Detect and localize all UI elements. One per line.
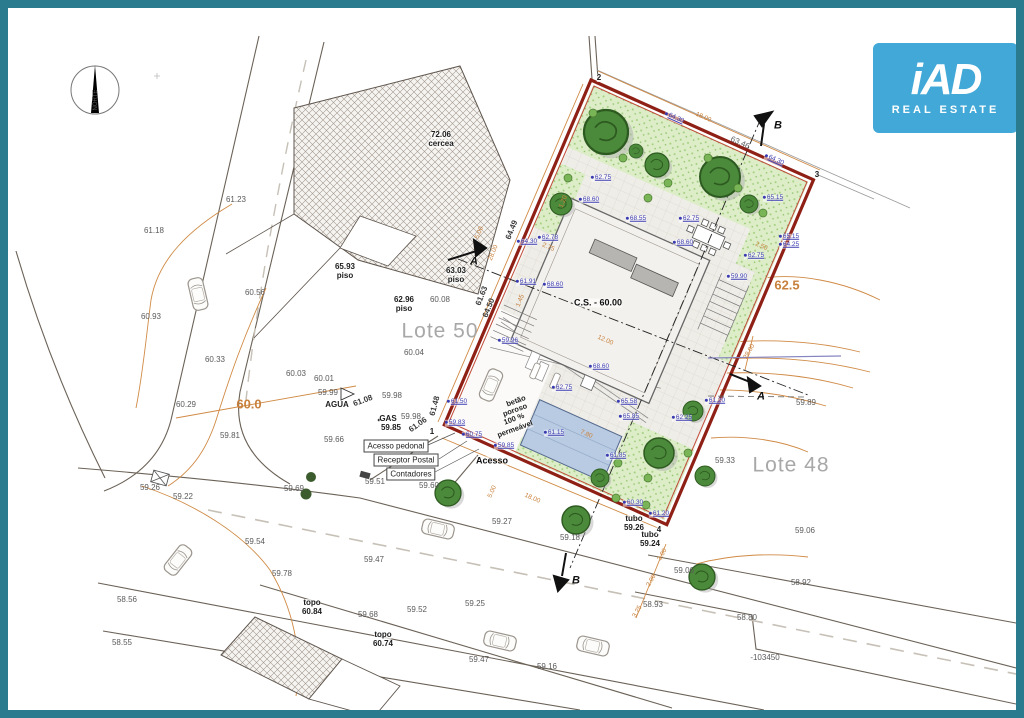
plan-label: 60.30 (623, 500, 643, 507)
plan-label: tubo (625, 515, 642, 523)
plan-label: piso (396, 305, 412, 313)
plan-label: Contadores (386, 468, 435, 481)
plan-label: 63.46 (729, 135, 751, 150)
plan-label: 3 (815, 171, 819, 179)
plan-label: 2.75 (541, 242, 555, 253)
plan-label: 59.47 (364, 556, 384, 564)
plan-label: 60.01 (314, 375, 334, 383)
plan-label: 2 (597, 74, 601, 82)
plan-label: 62.96 (394, 296, 414, 304)
plan-label: Lote 48 (752, 455, 829, 476)
plan-label: 1 (430, 428, 434, 436)
plan-label: NORTE (93, 90, 99, 111)
plan-label: 62.75 (552, 385, 572, 392)
plan-label: 59.83 (445, 420, 465, 427)
plan-label: 59.26 (140, 484, 160, 492)
plan-label: topo (374, 631, 391, 639)
plan-label: 1.20 (559, 195, 570, 209)
plan-label: 60.75 (462, 432, 482, 439)
plan-label: 59.33 (715, 457, 735, 465)
plan-label: 59.27 (492, 518, 512, 526)
site-plan-page: NORTE61.2361.1860.9360.5660.3360.2960.03… (0, 0, 1024, 718)
plan-label: 62.75 (679, 216, 699, 223)
plan-label: Lote 50 (401, 321, 478, 342)
plan-label: 2.00 (646, 574, 658, 588)
plan-label: 5.00 (487, 485, 498, 499)
plan-label: 60.29 (176, 401, 196, 409)
plan-label: 62.5 (774, 279, 799, 292)
plan-label: 62.75 (591, 175, 611, 182)
plan-label: 60.04 (404, 349, 424, 357)
plan-label: 68.60 (673, 240, 693, 247)
plan-label: 58.92 (791, 579, 811, 587)
plan-label: 59.51 (365, 478, 385, 486)
plan-label: 59.68 (358, 611, 378, 619)
plan-label: 68.60 (543, 282, 563, 289)
iad-logo: iAD REAL ESTATE (873, 43, 1018, 133)
plan-label: 61.20 (705, 398, 725, 405)
plan-label: 4 (657, 526, 661, 534)
plan-label: 61.48 (429, 395, 442, 416)
plan-label: 61.18 (144, 227, 164, 235)
plan-label: 18.00 (523, 493, 541, 506)
plan-label: 59.99 (318, 389, 338, 397)
plan-label: 65.85 (619, 414, 639, 421)
plan-label: 60.33 (205, 356, 225, 364)
plan-label: piso (337, 272, 353, 280)
plan-label: 59.47 (469, 656, 489, 664)
plan-label: 68.60 (589, 364, 609, 371)
plan-label: 64.25 (779, 242, 799, 249)
plan-label: 58.56 (117, 596, 137, 604)
plan-label: 61.20 (649, 511, 669, 518)
plan-label: 58.55 (112, 639, 132, 647)
plan-label: 7.80 (579, 429, 593, 440)
plan-label: 59.98 (382, 392, 402, 400)
plan-label: 61.85 (606, 453, 626, 460)
plan-label: 60.0 (236, 398, 261, 411)
plan-label: 59.54 (245, 538, 265, 546)
plan-label: 59.78 (272, 570, 292, 578)
plan-label: 64.30 (517, 239, 537, 246)
plan-label: cercea (428, 140, 453, 148)
plan-label: 59.52 (407, 606, 427, 614)
plan-label: 3.25 (632, 605, 644, 619)
plan-label: 60.03 (286, 370, 306, 378)
plan-label: -103450 (750, 654, 779, 662)
plan-label: 12.00 (596, 335, 614, 348)
plan-label: 1.45 (516, 294, 527, 308)
plan-label: 68.60 (579, 197, 599, 204)
plan-label: 60.56 (245, 289, 265, 297)
plan-label: 62.75 (744, 253, 764, 260)
plan-label: B (774, 121, 782, 132)
plan-label: 3.00 (657, 548, 669, 562)
plan-label: 63.03 (446, 267, 466, 275)
plan-label: 62.78 (538, 235, 558, 242)
iad-logo-tagline: REAL ESTATE (892, 104, 1000, 116)
plan-label: 28.00 (743, 343, 757, 360)
plan-label: 59.22 (173, 493, 193, 501)
plan-label: 60.08 (430, 296, 450, 304)
plan-label: 64.30 (763, 153, 784, 167)
plan-label: 65.58 (617, 399, 637, 406)
plan-label: 61.08 (352, 394, 374, 408)
plan-label: 59.85 (381, 424, 401, 432)
plan-label: 65.93 (335, 263, 355, 271)
plan-label: 60.93 (141, 313, 161, 321)
plan-label: 61.23 (226, 196, 246, 204)
plan-label: B (572, 576, 580, 587)
plan-label: AGUA (325, 401, 349, 409)
plan-label: 59.25 (465, 600, 485, 608)
plan-labels-layer: NORTE61.2361.1860.9360.5660.3360.2960.03… (8, 8, 1016, 710)
plan-label: topo (303, 599, 320, 607)
plan-label: 18.00 (694, 112, 712, 125)
plan-label: 60.84 (302, 608, 322, 616)
plan-label: 60.74 (373, 640, 393, 648)
plan-label: 59.24 (640, 540, 660, 548)
plan-label: C.S. - 60.00 (574, 299, 622, 308)
plan-label: 59.18 (560, 534, 580, 542)
plan-label: 59.90 (727, 274, 747, 281)
plan-label: 61.50 (447, 399, 467, 406)
plan-label: Acesso (476, 457, 508, 466)
plan-label: 65.15 (779, 234, 799, 241)
plan-label: 59.06 (674, 567, 694, 575)
plan-label: 5.00 (475, 226, 486, 240)
plan-label: Receptor Postal (374, 454, 439, 467)
plan-label: GAS (379, 415, 396, 423)
plan-label: 65.15 (763, 195, 783, 202)
plan-label: 59.96 (498, 338, 518, 345)
plan-label: 59.16 (537, 663, 557, 671)
plan-label: 59.89 (796, 399, 816, 407)
plan-label: 28.00 (488, 244, 500, 262)
plan-label: 59.85 (494, 443, 514, 450)
plan-label: 68.55 (626, 216, 646, 223)
plan-label: 58.80 (737, 614, 757, 622)
iad-logo-brand: iAD (911, 60, 981, 100)
plan-label: 64.49 (505, 219, 520, 241)
plan-label: 61.91 (516, 279, 536, 286)
plan-label: 59.69 (284, 485, 304, 493)
plan-label: 59.81 (220, 432, 240, 440)
plan-label: 59.66 (324, 436, 344, 444)
plan-label: 62.25 (672, 415, 692, 422)
plan-label: A (757, 392, 765, 403)
plan-label: Acesso pedonal (364, 440, 429, 453)
plan-label: 59.60 (419, 482, 439, 490)
plan-label: 64.30 (663, 111, 684, 125)
plan-label: piso (448, 276, 464, 284)
plan-label: 72.06 (431, 131, 451, 139)
plan-label: 58.93 (643, 601, 663, 609)
plan-label: 59.06 (795, 527, 815, 535)
plan-label: 61.15 (544, 430, 564, 437)
plan-label: A (470, 257, 478, 268)
